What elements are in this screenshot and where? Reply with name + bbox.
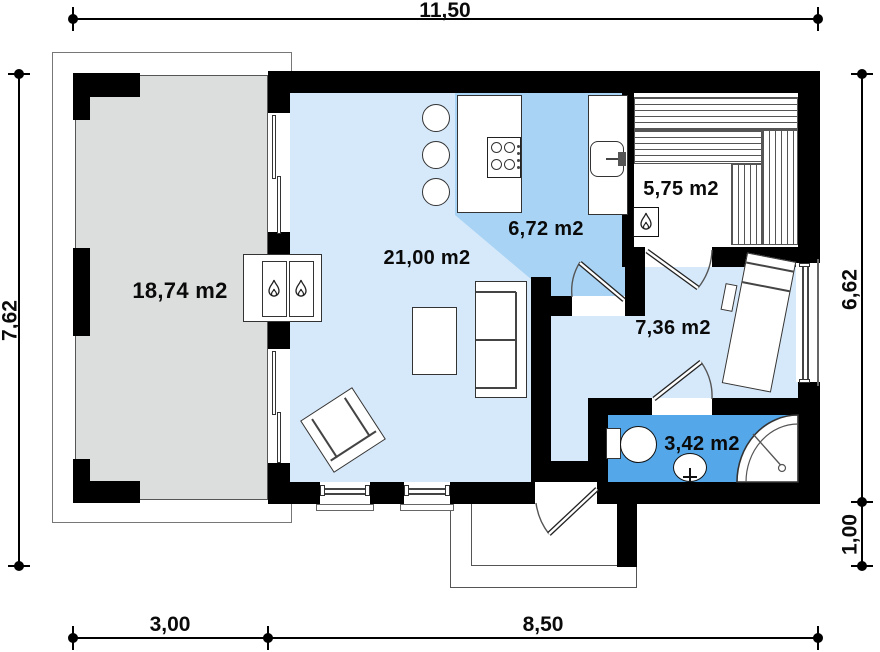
dimension-label-right-upper: 6,62 <box>840 240 861 340</box>
bedroom-area-label: 7,36 m2 <box>593 318 753 338</box>
dimension-tick <box>8 73 30 75</box>
kitchen-faucet <box>618 152 626 166</box>
kitchen-area-label: 6,72 m2 <box>466 219 626 239</box>
sauna-bench-right <box>762 130 798 245</box>
wall-kitchen-bottom-left <box>551 296 572 316</box>
window-a-cap <box>365 485 370 496</box>
sauna-area-label: 5,75 m2 <box>601 179 761 199</box>
dimension-tick <box>8 565 30 567</box>
terrace-pillar-tl-v <box>73 73 90 120</box>
stove-burner <box>491 142 502 153</box>
coffee-table <box>412 307 457 375</box>
toilet-tank <box>606 428 621 459</box>
bedroom-window-sill <box>817 259 819 386</box>
sofa-seat-line <box>476 339 516 341</box>
dimension-label-bottom-left: 3,00 <box>120 614 220 635</box>
bar-stool <box>422 104 450 132</box>
terrace-area-label: 18,74 m2 <box>100 280 260 302</box>
bedroom-window-frame-line <box>802 265 804 380</box>
wall-left-seg1 <box>268 93 290 113</box>
wall-bottom-seg1 <box>268 482 320 504</box>
bedroom-window-cap <box>799 379 810 383</box>
terrace-pillar-ml <box>73 248 90 336</box>
wall-left-seg2 <box>268 232 290 254</box>
dimension-tick <box>267 626 269 650</box>
wall-top <box>268 71 820 93</box>
wall-bathroom-left-h <box>531 461 608 483</box>
dimension-tick <box>72 626 74 650</box>
sliding-door-panel <box>272 351 276 415</box>
porch-outline-inner <box>471 503 620 566</box>
wall-bottom-seg2 <box>370 482 404 504</box>
dimension-tick <box>851 73 873 75</box>
wall-kitchen-bottom-right <box>625 247 645 316</box>
washbasin-tap <box>683 476 697 478</box>
wall-living-bedroom <box>531 277 551 483</box>
entrance-door-gap <box>535 482 597 504</box>
wall-bottom-seg4 <box>597 482 820 504</box>
window-b-frame-line <box>406 488 448 490</box>
window-b-frame-line <box>406 493 448 495</box>
window-b-cap <box>404 485 409 496</box>
wall-bathroom-top-left <box>588 398 652 415</box>
bar-stool <box>422 141 450 169</box>
bar-stool <box>422 178 450 206</box>
bed-pillow-line <box>742 281 789 292</box>
wall-porch-stub <box>617 503 637 567</box>
wall-bathroom-top-right <box>712 398 798 415</box>
sofa-armrest-line <box>476 291 516 293</box>
washbasin-tap <box>689 468 691 481</box>
stove-burner <box>491 159 502 170</box>
wall-left-seg3 <box>268 322 290 349</box>
sliding-door-panel <box>272 115 276 179</box>
sauna-heater <box>633 207 659 237</box>
fireplace-firebox-terrace <box>262 261 287 317</box>
sauna-bench-top <box>634 97 798 130</box>
dimension-label-left: 7,62 <box>0 271 21 371</box>
dimension-tick <box>72 7 74 31</box>
kitchen-door-gap <box>572 296 625 316</box>
living-room-area-label: 21,00 m2 <box>347 248 507 268</box>
window-b-cap <box>445 485 450 496</box>
window-b-sill <box>400 504 454 511</box>
flame-icon <box>266 279 282 299</box>
window-a-frame-line <box>322 488 368 490</box>
sliding-door-panel <box>277 176 281 234</box>
stove-knob <box>517 159 520 162</box>
dimension-label-bottom-right: 8,50 <box>493 614 593 635</box>
stove-burner <box>504 159 515 170</box>
floor-plan: 18,74 m2 21,00 m2 6,72 m2 5,75 m2 7,36 m… <box>0 0 880 652</box>
sauna-bench-right-inner <box>731 164 762 245</box>
stove-knob <box>517 145 520 148</box>
flame-icon <box>293 279 309 299</box>
dimension-line-right <box>861 74 863 566</box>
sauna-bench-top-lower <box>634 130 762 164</box>
stove-knob <box>517 152 520 155</box>
dimension-line-bottom <box>73 637 818 639</box>
bedroom-window-cap <box>799 263 810 267</box>
sauna-door-gap <box>645 247 712 267</box>
fireplace-firebox-living <box>289 261 314 317</box>
bathroom-door-gap <box>652 398 712 415</box>
sofa-armrest-line <box>476 387 516 389</box>
window-a-cap <box>320 485 325 496</box>
flame-icon <box>638 212 654 232</box>
dimension-tick <box>817 626 819 650</box>
bedroom-window-frame-line <box>807 265 809 380</box>
window-a-frame-line <box>322 493 368 495</box>
dimension-label-right-lower: 1,00 <box>840 485 861 585</box>
sliding-door-panel <box>277 412 281 463</box>
stove-knob <box>517 166 520 169</box>
dimension-label-top: 11,50 <box>395 0 495 21</box>
wall-bottom-seg3 <box>450 482 535 504</box>
terrace-pillar-bl-h <box>73 481 140 503</box>
bed-headboard-line <box>746 261 793 272</box>
wall-bathroom-left-v <box>588 413 608 461</box>
bathroom-area-label: 3,42 m2 <box>622 434 782 454</box>
stove-burner <box>504 142 515 153</box>
dimension-tick <box>817 7 819 31</box>
window-a-sill <box>316 504 374 511</box>
